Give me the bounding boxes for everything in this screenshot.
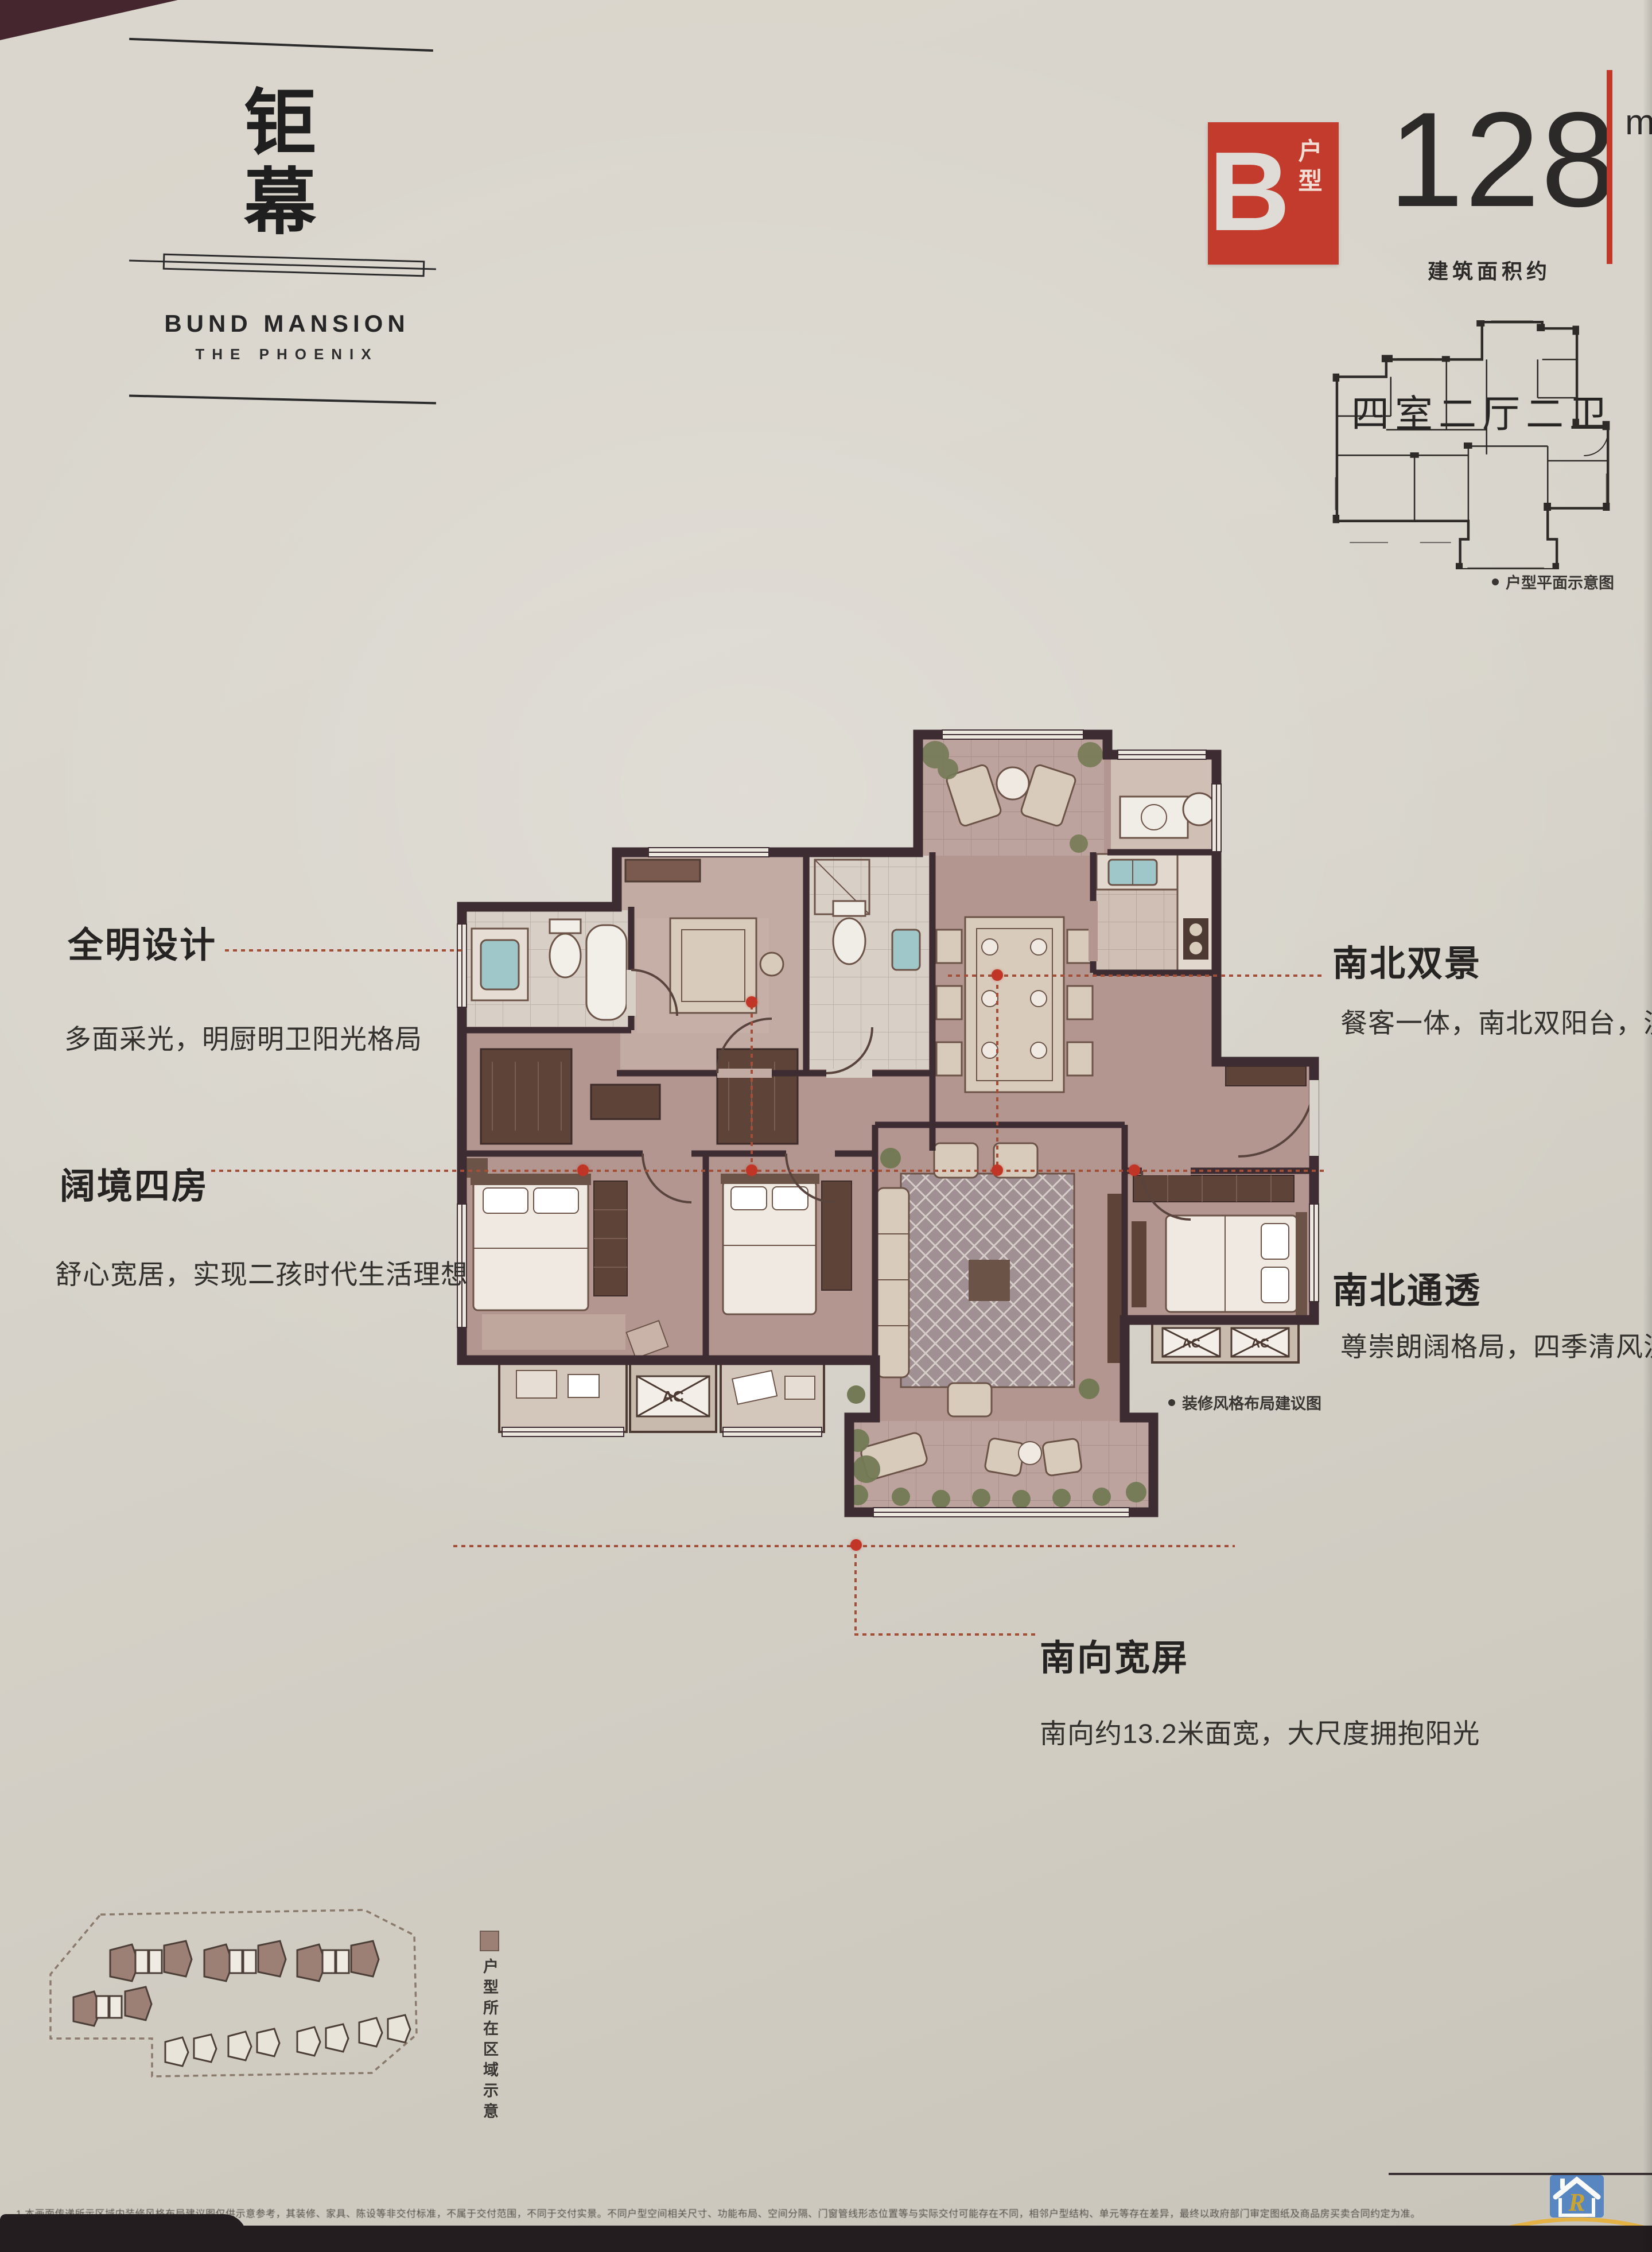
plan-caption: 装修风格布局建议图	[1168, 1391, 1321, 1414]
mini-plan-caption: 户型平面示意图	[1492, 570, 1614, 593]
photo-bottom-edge	[0, 2226, 1652, 2252]
feature-title-shuangjing: 南北双景	[1332, 934, 1482, 986]
unit-type-badge: B 户型	[1208, 122, 1339, 265]
ac-label-right1: AC	[1182, 1336, 1200, 1350]
brand-name-en: BUND MANSION	[132, 310, 442, 337]
feature-desc-kuojing: 舒心宽居，实现二孩时代生活理想	[55, 1252, 468, 1292]
plan-marker-living	[992, 1164, 1003, 1176]
feature-desc-shuangjing: 餐客一体，南北双阳台，漫享自	[1340, 1001, 1652, 1040]
accent-bar	[1607, 70, 1612, 264]
feature-title-kuanping: 南向宽屏	[1040, 1629, 1189, 1680]
plan-marker-south	[850, 1539, 862, 1551]
plan-marker-master	[577, 1164, 589, 1176]
leader-line-quanming	[225, 949, 463, 952]
unit-area-value: 128	[1389, 92, 1617, 227]
mini-plan-caption-text: 户型平面示意图	[1506, 570, 1614, 593]
plan-marker-bedroom3	[1129, 1164, 1140, 1176]
unit-type-suffix: 户型	[1291, 122, 1339, 265]
leader-line-study-v	[751, 1005, 753, 1172]
feature-title-tongtou: 南北通透	[1332, 1261, 1482, 1313]
leader-line-dining-v	[996, 977, 998, 1172]
leader-line-main	[211, 1170, 1327, 1172]
leader-line-south	[453, 1545, 1235, 1547]
leader-line-south-h2	[854, 1633, 1038, 1636]
brand-top-rule	[129, 38, 433, 52]
site-legend-swatch	[480, 1931, 499, 1951]
unit-type-letter: B	[1208, 122, 1291, 265]
feature-title-kuojing: 阔境四房	[60, 1157, 209, 1209]
plan-marker-study	[746, 996, 757, 1008]
photo-corner-shadow	[0, 0, 178, 40]
feature-desc-tongtou: 尊崇朗阔格局，四季清风流连	[1340, 1325, 1652, 1364]
unit-area-label: 建筑面积约	[1428, 255, 1551, 285]
bullet-icon	[1168, 1399, 1175, 1406]
photo-right-shade	[1643, 0, 1652, 2252]
leader-line-south-v	[854, 1546, 857, 1636]
watermark-house-icon: R	[1505, 2175, 1649, 2230]
feature-title-quanming: 全明设计	[68, 916, 217, 968]
brochure-page: 钜 幕 BUND MANSION THE PHOENIX B 户型 128 m²…	[0, 0, 1652, 2252]
brand-char-1: 钜	[211, 87, 349, 160]
watermark-monogram: R	[1568, 2188, 1585, 2216]
feature-desc-kuanping: 南向约13.2米面宽，大尺度拥抱阳光	[1040, 1711, 1480, 1751]
unit-area: 128 m²	[1389, 92, 1630, 227]
brand-char-2: 幕	[211, 166, 349, 239]
bullet-icon	[1492, 578, 1499, 585]
brand-tagline-en: THE PHOENIX	[132, 345, 442, 363]
site-plan	[29, 1905, 465, 2100]
feature-desc-quanming: 多面采光，明厨明卫阳光格局	[64, 1017, 422, 1057]
ac-label-right2: AC	[1251, 1336, 1269, 1350]
plan-marker-bedroom2	[746, 1164, 757, 1176]
site-legend-caption: 户型所在区域示意	[479, 1958, 501, 2123]
plan-marker-dining	[992, 969, 1003, 981]
ac-label-left: AC	[662, 1388, 684, 1405]
mini-floorplan	[1324, 317, 1637, 569]
brand-bottom-rule	[129, 394, 436, 404]
leader-line-shuangjing	[948, 974, 1326, 977]
brand-mid-box	[163, 254, 425, 277]
plan-caption-text: 装修风格布局建议图	[1182, 1391, 1321, 1414]
